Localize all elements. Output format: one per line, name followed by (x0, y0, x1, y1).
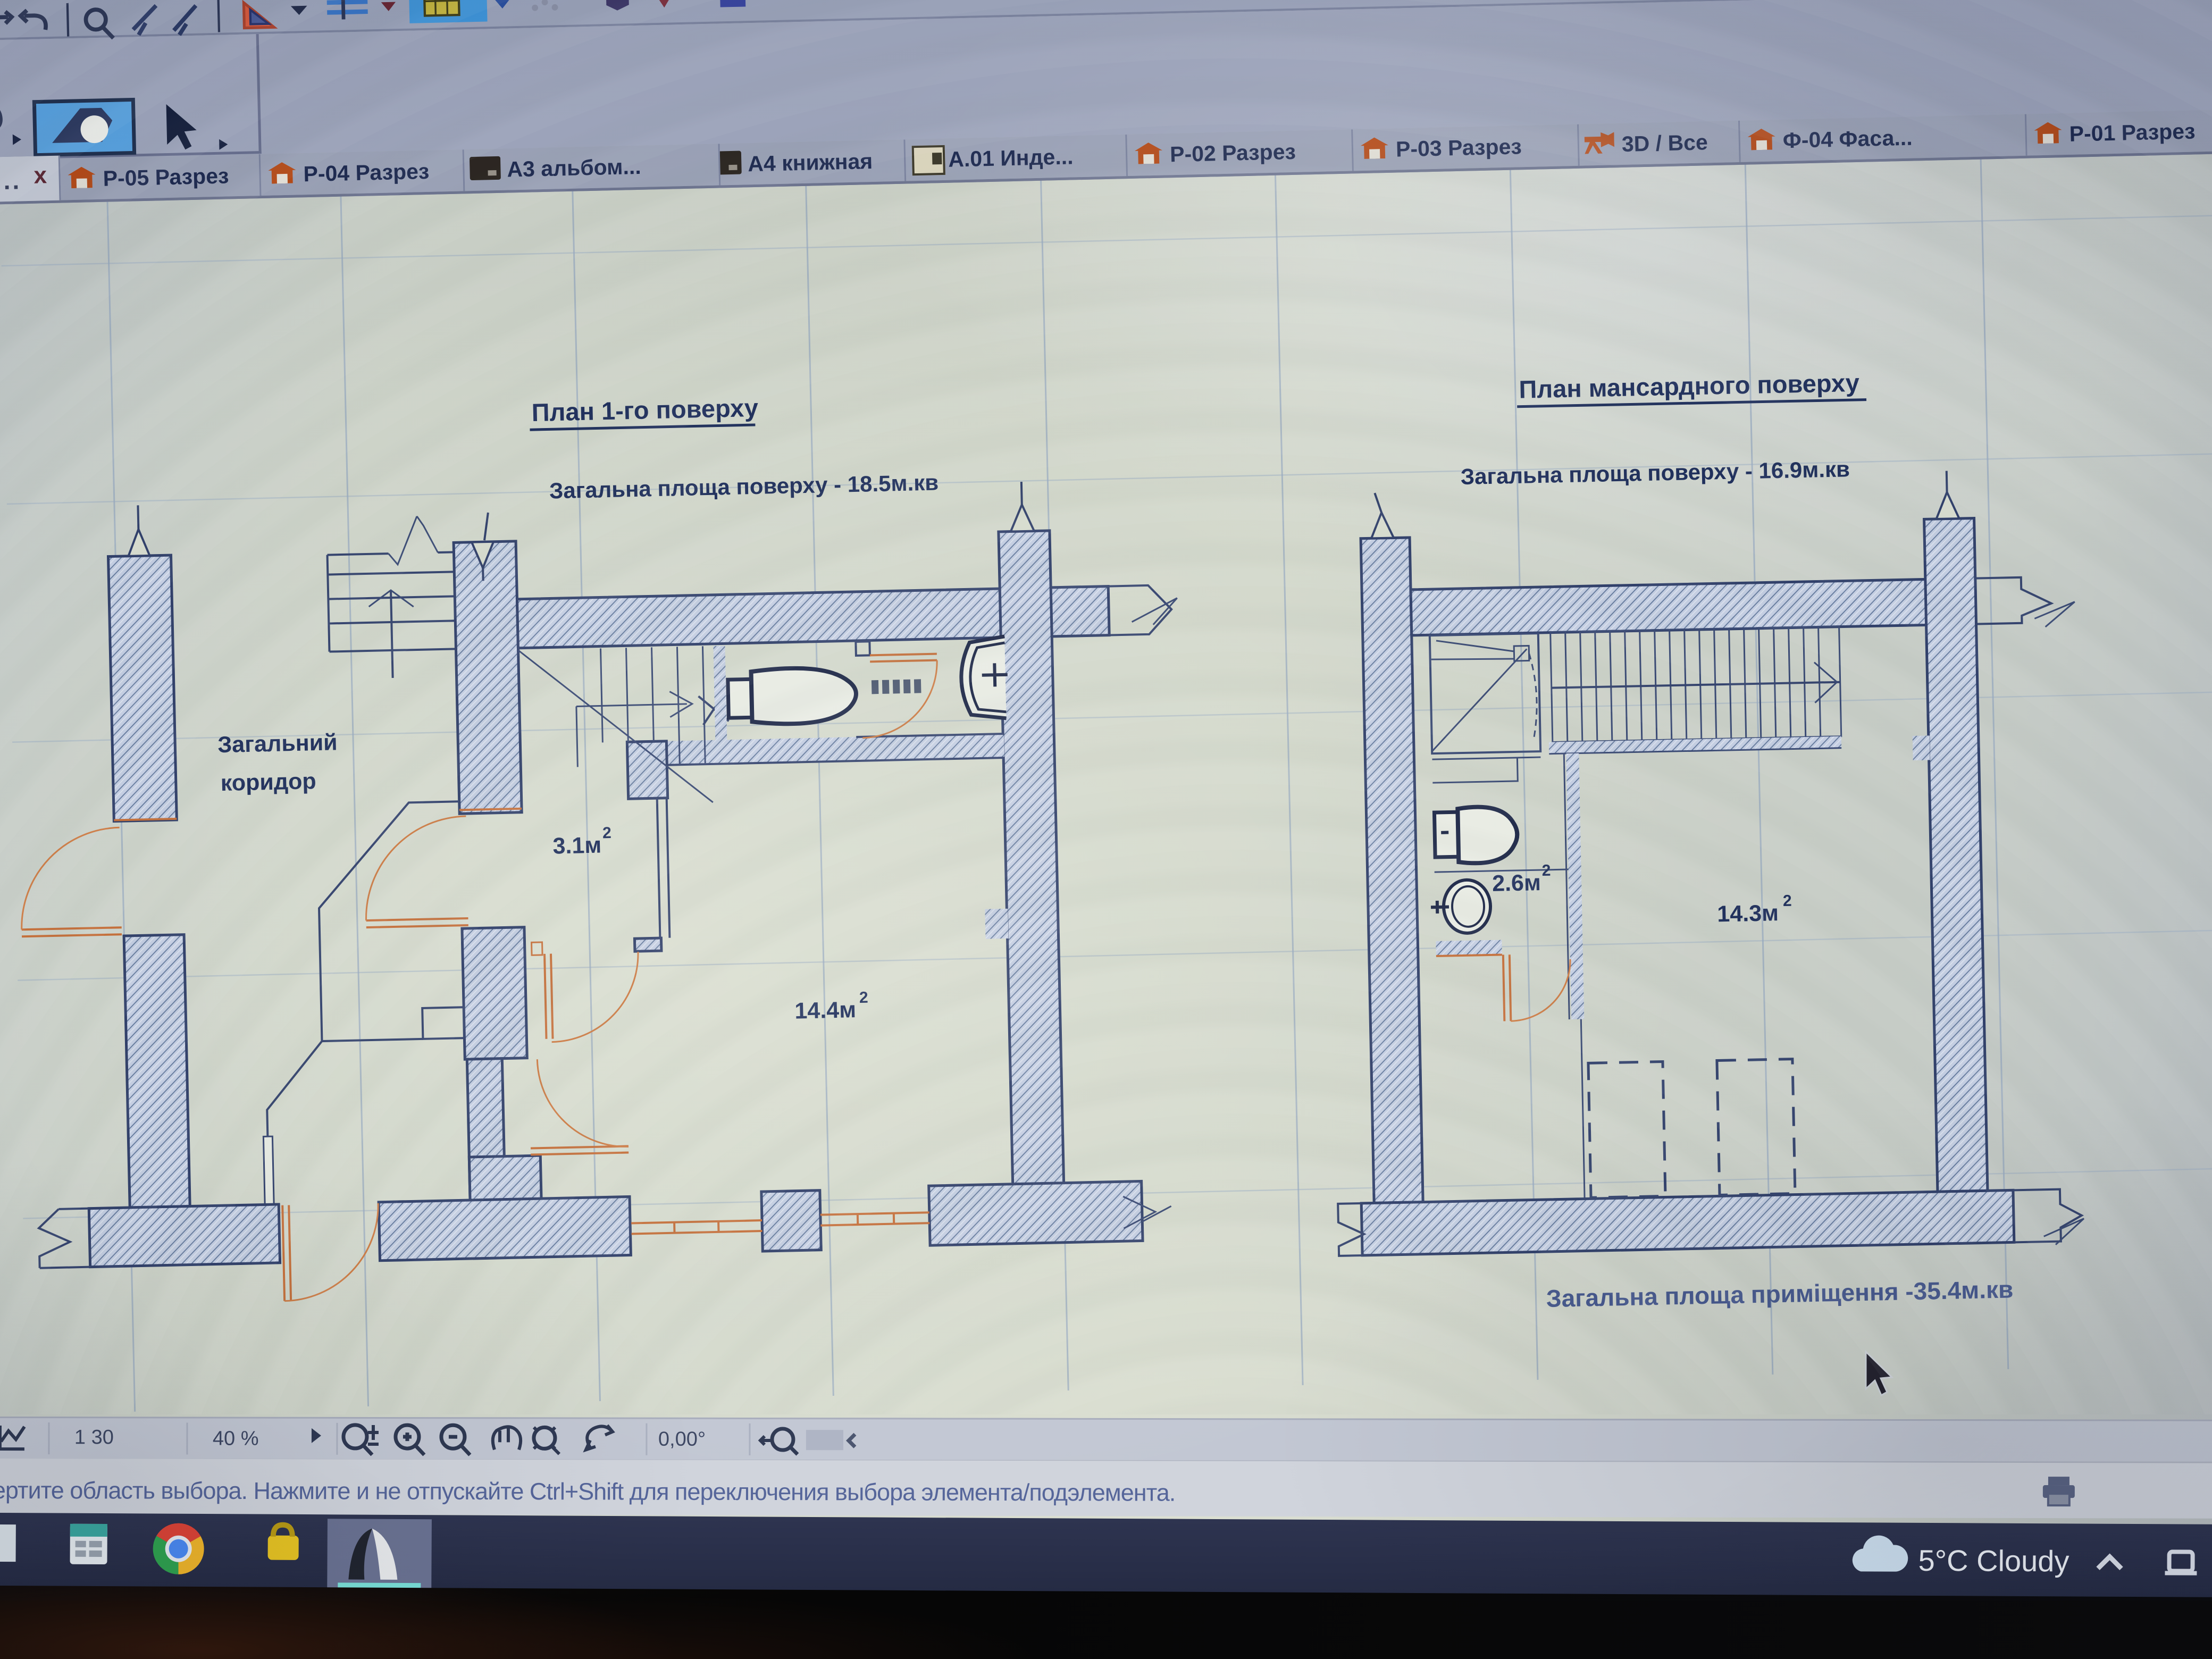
svg-text:5°C Cloudy: 5°C Cloudy (1918, 1544, 2069, 1578)
svg-text:3.1м: 3.1м (552, 832, 602, 859)
svg-text:коридор: коридор (220, 768, 316, 796)
svg-text:2: 2 (1783, 892, 1792, 910)
svg-text:2: 2 (1541, 862, 1551, 879)
svg-text:2.6м: 2.6м (1492, 870, 1541, 896)
svg-text:План мансардного поверху: План мансардного поверху (1519, 368, 1859, 404)
svg-text:1 30: 1 30 (74, 1426, 114, 1448)
svg-text:Загальний: Загальний (217, 730, 338, 758)
svg-text:2: 2 (602, 824, 611, 842)
svg-text:0,00°: 0,00° (658, 1428, 706, 1451)
svg-text:План 1-го поверху: План 1-го поверху (531, 393, 758, 426)
svg-text:14.4м: 14.4м (794, 997, 857, 1024)
svg-text:Загальна площа поверху - 16.9м: Загальна площа поверху - 16.9м.кв (1460, 456, 1850, 489)
svg-text:Загальна площа поверху - 18.5м: Загальна площа поверху - 18.5м.кв (549, 470, 939, 503)
svg-text:40 %: 40 % (213, 1428, 259, 1450)
svg-text:Загальна площа приміщення -35.: Загальна площа приміщення -35.4м.кв (1546, 1275, 2013, 1312)
svg-text:2: 2 (859, 989, 868, 1007)
svg-text:14.3м: 14.3м (1717, 900, 1779, 927)
